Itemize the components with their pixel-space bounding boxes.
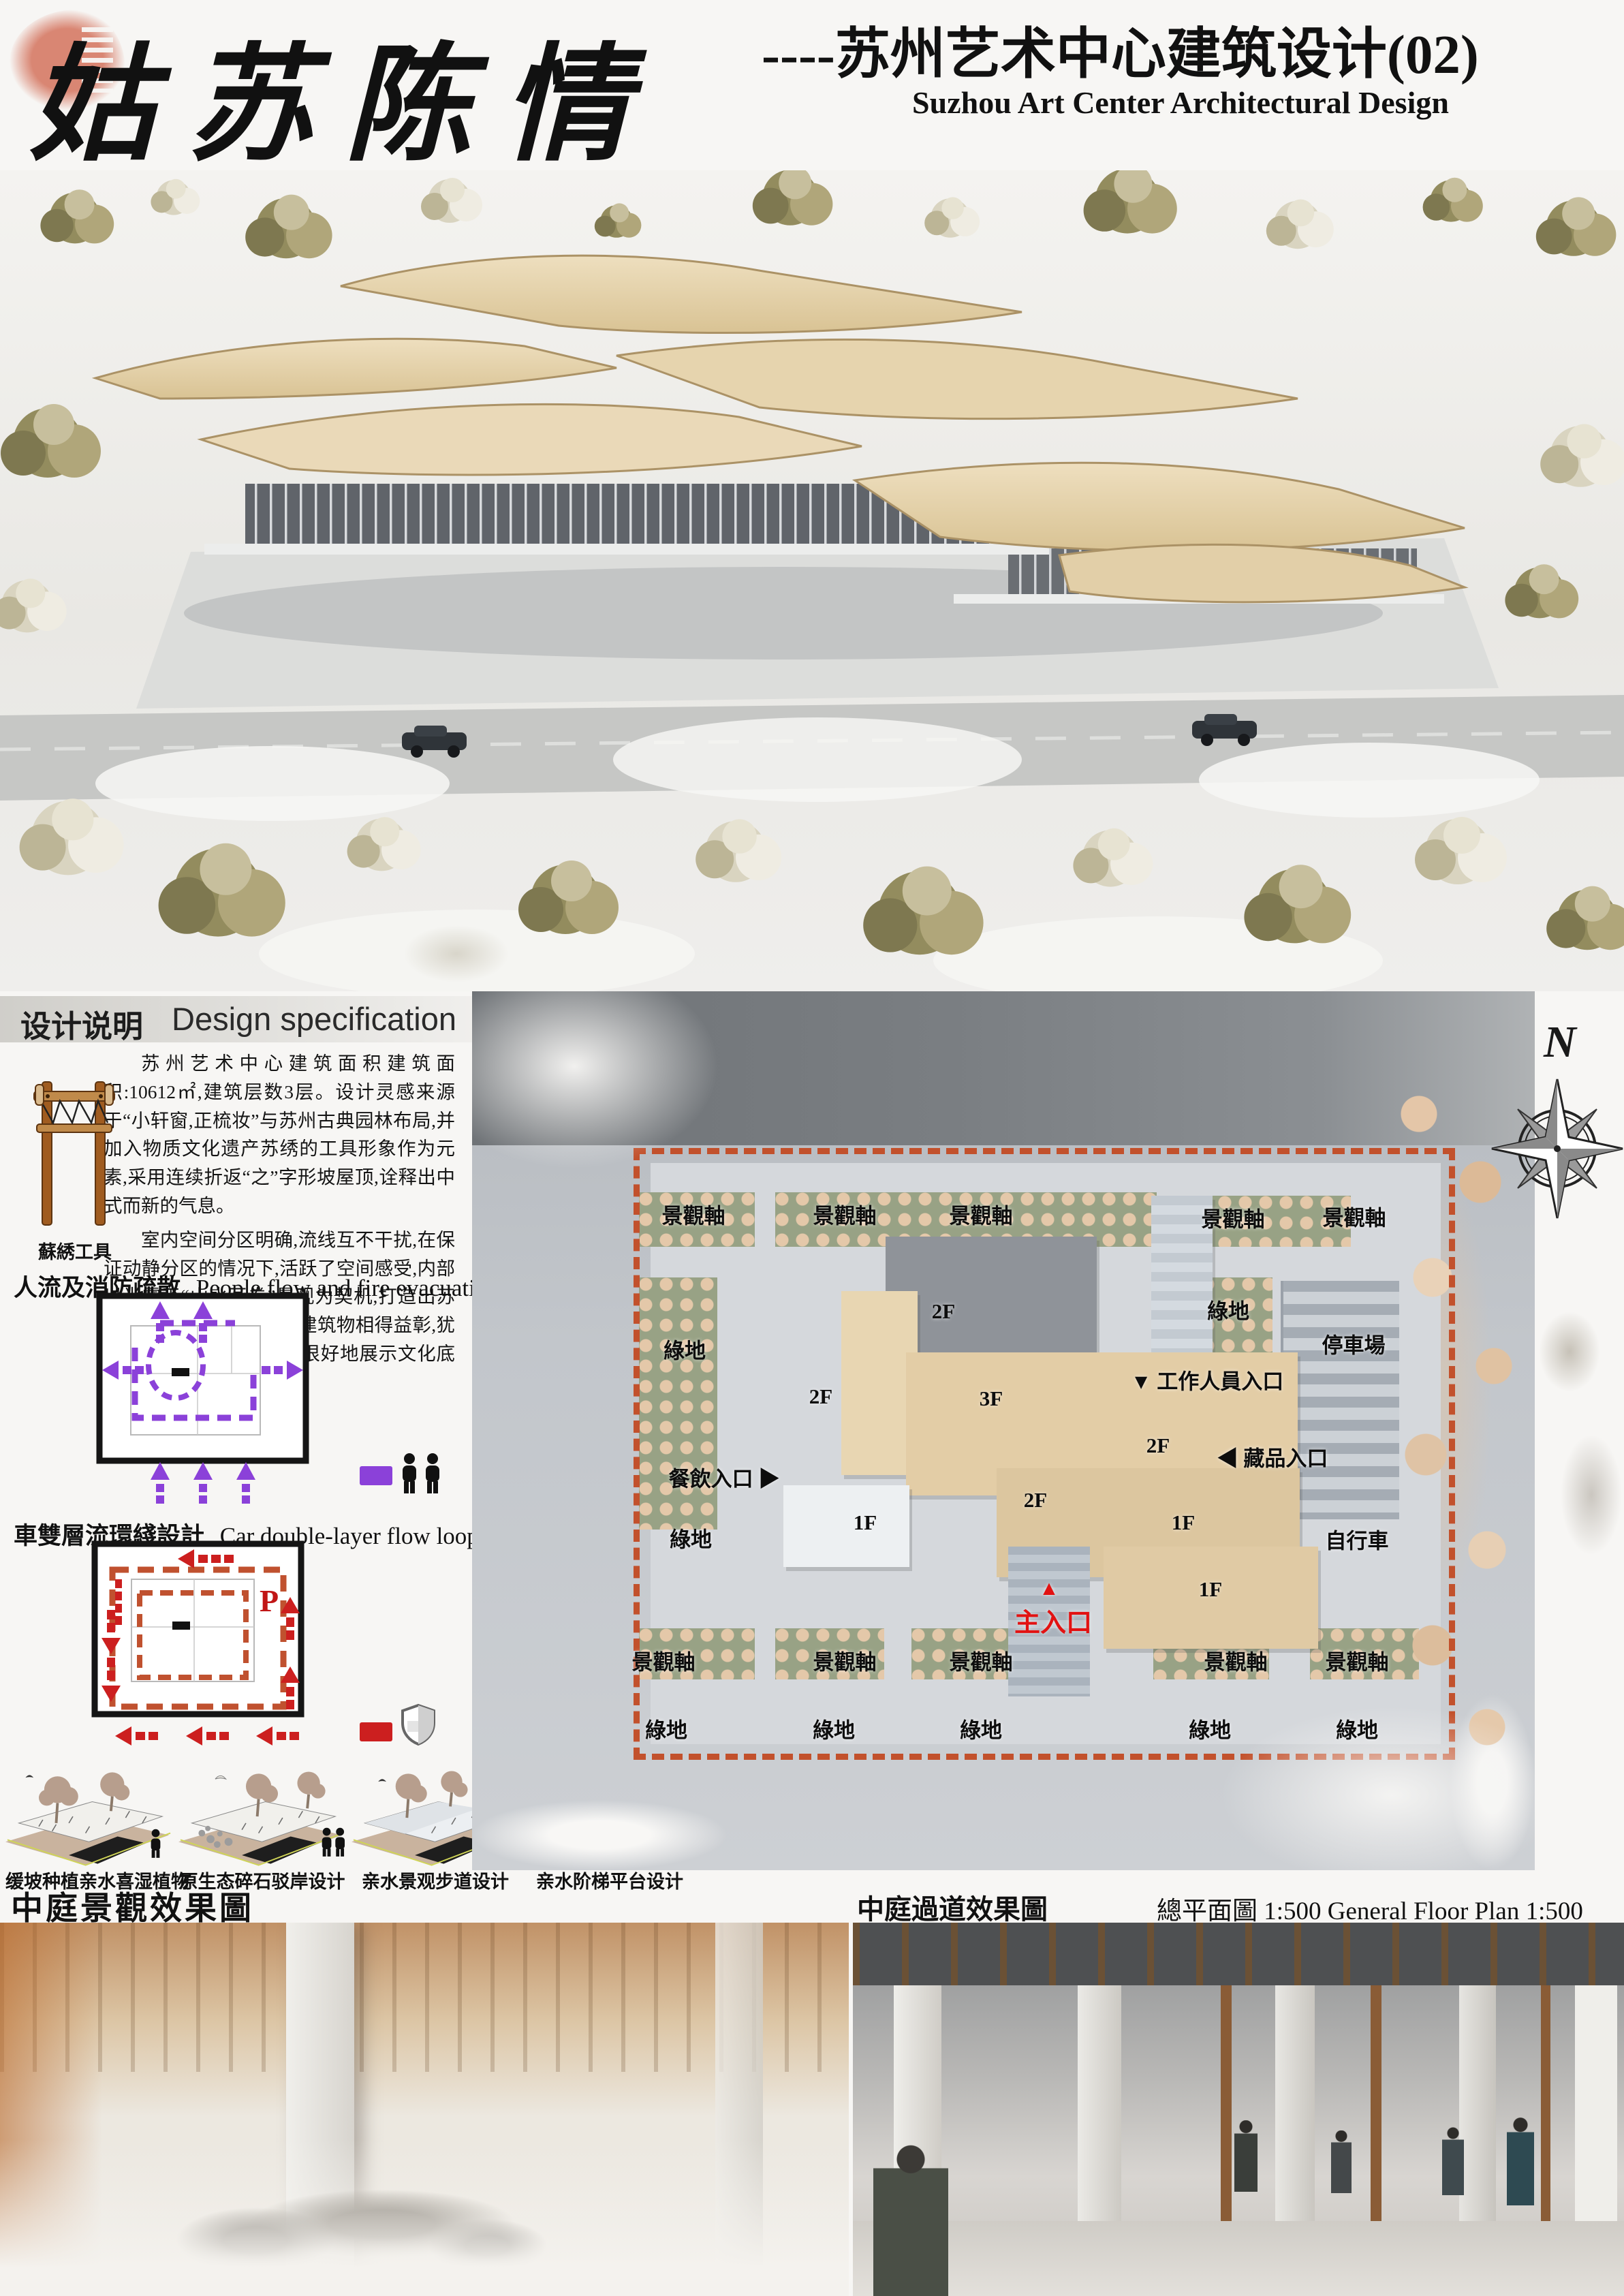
mist-overlay	[0, 2139, 849, 2296]
page-title: 姑苏陈情	[29, 1, 778, 185]
embroidery-tool-caption: 蘇綉工具	[38, 1237, 112, 1264]
person-silhouette	[1331, 2130, 1352, 2193]
people-icon	[399, 1453, 447, 1496]
eco-diagram-slope-planting	[5, 1769, 172, 1871]
poster: 姑苏陈情 ----苏州艺术中心建筑设计(02) Suzhou Art Cente…	[0, 0, 1624, 2296]
corridor-caption: 中庭過道效果圖	[857, 1887, 1048, 1927]
parking-p-label: P	[260, 1583, 279, 1618]
shield-icon	[401, 1703, 436, 1747]
spec-paragraph-1: 苏州艺术中心建筑面积建筑面积:10612㎡,建筑层数3层。设计灵感来源于“小轩窗…	[104, 1049, 455, 1220]
subtitle-chinese: ----苏州艺术中心建筑设计(02)	[762, 10, 1620, 89]
compass-icon	[1489, 1076, 1624, 1221]
car-flow-diagram: P	[91, 1540, 305, 1758]
spec-heading-cn: 设计说明	[20, 1002, 143, 1046]
people-flow-diagram	[95, 1292, 310, 1510]
floor-plan-caption: 總平面圖 1:500 General Floor Plan 1:500	[1157, 1890, 1583, 1927]
courtyard-rendering	[0, 1923, 849, 2296]
person-silhouette	[1234, 2120, 1258, 2192]
person-silhouette	[1442, 2127, 1464, 2195]
site-plan-road-band	[472, 991, 1535, 1145]
site-plan-panel	[472, 991, 1535, 1870]
courtyard-caption: 中庭景觀效果圖	[11, 1882, 254, 1929]
car-flow-legend-swatch	[360, 1722, 392, 1741]
corridor-rendering	[853, 1923, 1624, 2296]
person-silhouette	[1507, 2117, 1534, 2205]
ink-splatter	[1526, 1294, 1624, 1581]
floor-band	[853, 2221, 1624, 2296]
person-silhouette-seated	[873, 2141, 948, 2296]
subtitle-english: Suzhou Art Center Architectural Design	[762, 84, 1599, 121]
wood-joists	[853, 1923, 1624, 1985]
north-label: N	[1544, 1017, 1576, 1068]
eco-caption-4: 亲水阶梯平台设计	[526, 1867, 693, 1893]
site-boundary-dashed	[634, 1148, 1455, 1760]
aerial-rendering	[0, 170, 1624, 991]
embroidery-tool-illustration	[30, 1076, 119, 1233]
eco-caption-3: 亲水景观步道设计	[352, 1867, 519, 1893]
spec-heading-en: Design specification	[172, 1000, 456, 1038]
eco-diagram-gravel-bank	[178, 1769, 345, 1871]
people-flow-legend-swatch	[360, 1466, 392, 1485]
